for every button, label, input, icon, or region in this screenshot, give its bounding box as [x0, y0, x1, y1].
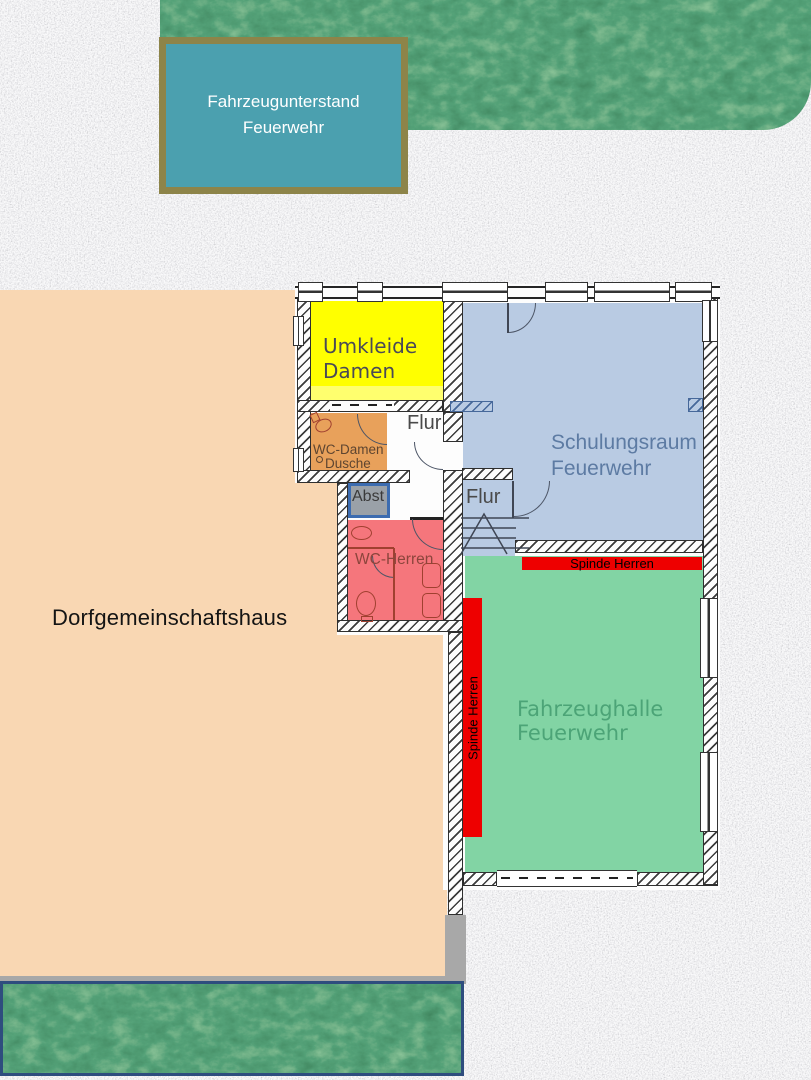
window — [675, 282, 712, 302]
lawn-bottom — [0, 981, 464, 1076]
stairs-icon — [458, 506, 532, 556]
room-label-flur-lower: Flur — [466, 486, 500, 509]
window — [700, 752, 718, 832]
door-leaf — [507, 303, 509, 333]
locker-strip-spinde-herren-top: Spinde Herren — [522, 557, 702, 570]
window — [442, 282, 508, 302]
wall — [448, 632, 463, 915]
room-label-abst: Abst — [352, 488, 384, 506]
window — [357, 282, 383, 302]
toilet-tank-icon — [361, 616, 373, 622]
garage-door-opening — [497, 870, 637, 887]
site-plan: Fahrzeugunterstand Feuerwehr Dorfgemeins… — [0, 0, 811, 1080]
room-label-umkleide: Umkleide Damen — [323, 334, 417, 384]
wall — [443, 290, 463, 412]
shed-fahrzeugunterstand: Fahrzeugunterstand Feuerwehr — [159, 37, 408, 194]
building-label: Dorfgemeinschaftshaus — [52, 605, 282, 631]
wall — [443, 412, 463, 442]
door-opening — [330, 401, 394, 411]
room-label-fahrzeughalle: Fahrzeughalle Feuerwehr — [517, 697, 663, 745]
wall — [297, 470, 410, 483]
toilet-icon — [356, 591, 376, 616]
partition-line — [348, 547, 394, 549]
room-label-flur-upper: Flur — [407, 412, 441, 435]
room-umkleide-damen-floor-strip — [311, 386, 443, 400]
window — [293, 316, 304, 346]
window — [702, 300, 718, 342]
room-label-wc-damen: WC-Damen Dusche — [313, 443, 384, 471]
locker-strip-label: Spinde Herren — [570, 556, 654, 571]
window — [298, 282, 323, 302]
sink-icon — [422, 593, 441, 618]
building-dorfgemeinschaftshaus — [0, 628, 447, 977]
locker-strip-spinde-herren-side: Spinde Herren — [463, 598, 482, 837]
wall — [462, 468, 513, 480]
window — [594, 282, 670, 302]
window — [293, 448, 304, 472]
shed-label-line2: Feuerwehr — [166, 115, 401, 141]
room-label-schulungsraum: Schulungsraum Feuerwehr — [551, 430, 697, 482]
wall — [463, 872, 497, 886]
locker-strip-label: Spinde Herren — [466, 676, 479, 760]
wall — [337, 483, 348, 632]
wall-pillar — [688, 398, 703, 412]
building-border — [445, 915, 466, 981]
shed-label-line1: Fahrzeugunterstand — [166, 89, 401, 115]
room-label-wc-herren: WC-Herren — [355, 551, 433, 569]
wall-pillar — [450, 401, 493, 412]
window — [700, 598, 718, 678]
building-dorfgemeinschaftshaus — [0, 290, 295, 483]
wall — [515, 540, 703, 553]
window — [545, 282, 588, 302]
toilet-icon — [351, 526, 372, 540]
wall — [337, 620, 463, 632]
